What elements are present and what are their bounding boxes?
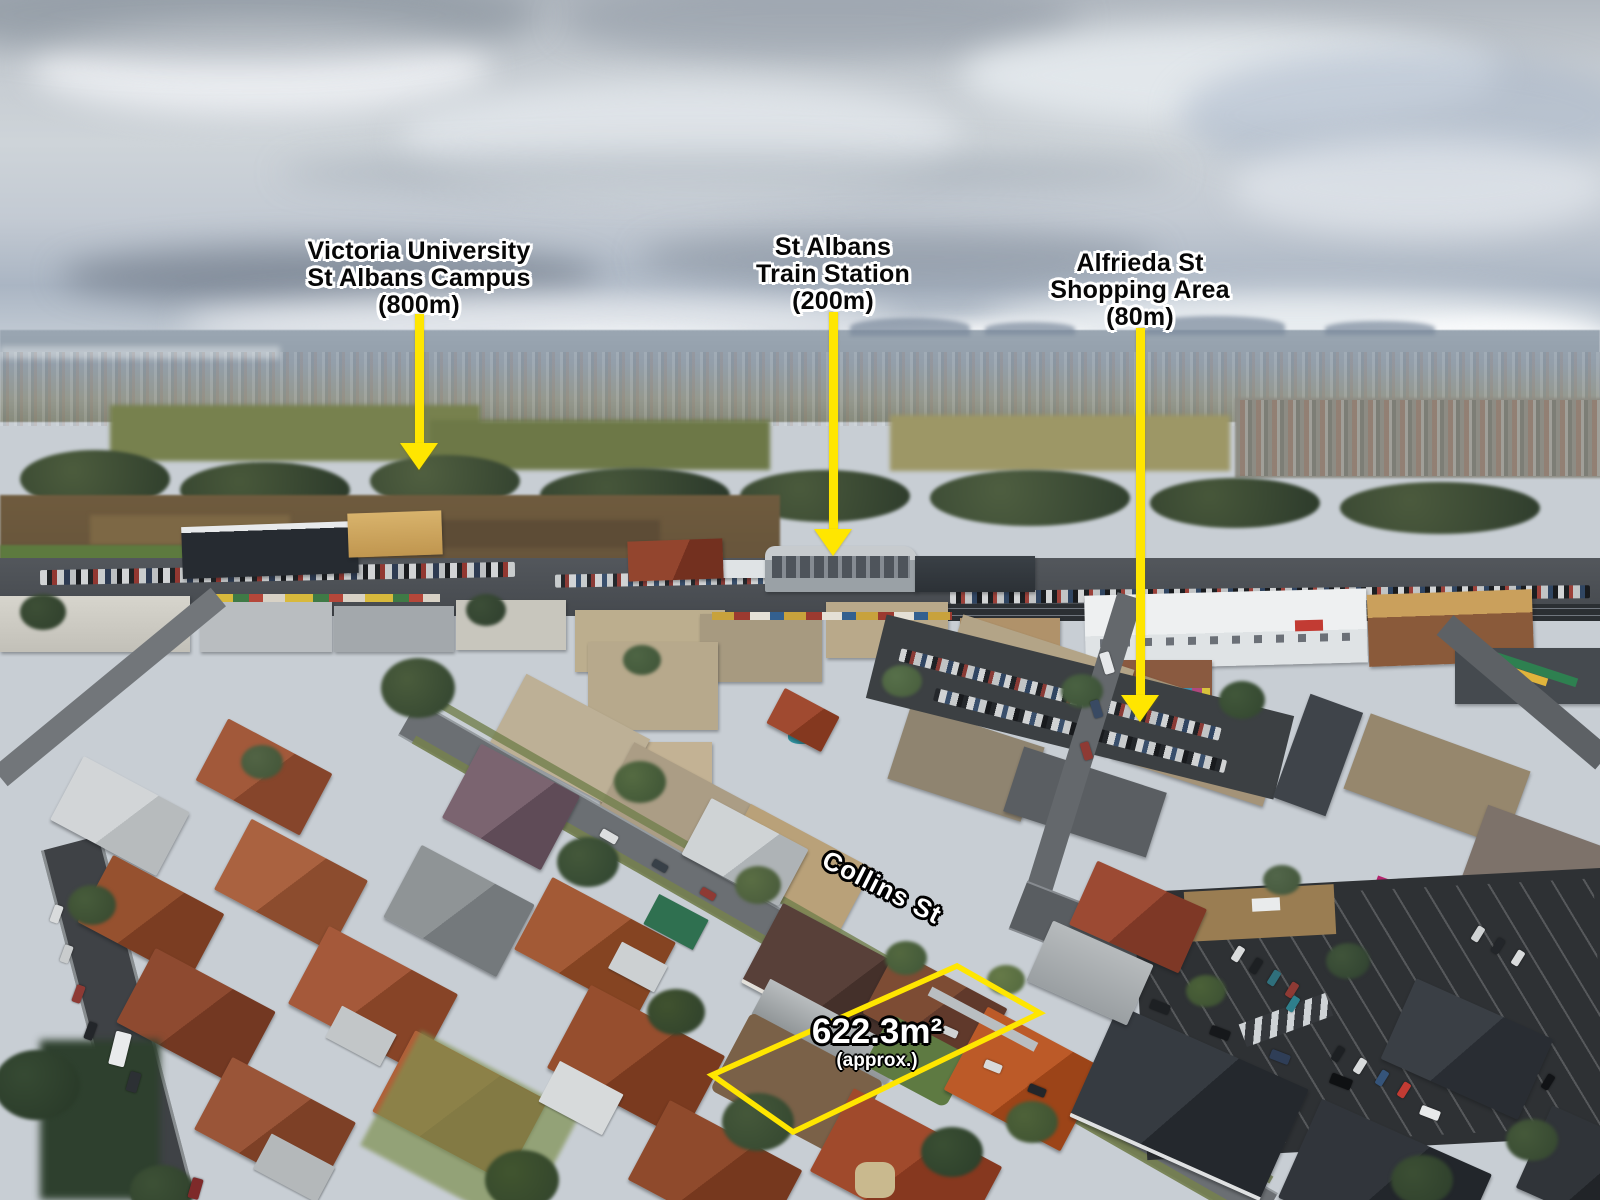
arrow-train-station-shaft — [829, 312, 838, 532]
label-line: Alfrieda St — [930, 250, 1350, 277]
aerial-photo: Victoria University St Albans Campus (80… — [0, 0, 1600, 1200]
arrow-victoria-university-shaft — [415, 314, 424, 446]
label-line: St Albans Campus — [209, 265, 629, 292]
label-line: (80m) — [930, 304, 1350, 331]
arrow-shopping-area-head — [1121, 695, 1159, 722]
arrow-train-station-head — [814, 529, 852, 556]
label-shopping-area: Alfrieda St Shopping Area (80m) — [930, 250, 1350, 331]
label-line: Shopping Area — [930, 277, 1350, 304]
arrow-victoria-university-head — [400, 443, 438, 470]
property-area-qualifier: (approx.) — [737, 1050, 1017, 1071]
label-line: Victoria University — [209, 238, 629, 265]
arrow-shopping-area-shaft — [1136, 328, 1145, 698]
property-area-label: 622.3m² (approx.) — [737, 1014, 1017, 1071]
label-victoria-university: Victoria University St Albans Campus (80… — [209, 238, 629, 319]
property-area-value: 622.3m² — [737, 1014, 1017, 1050]
